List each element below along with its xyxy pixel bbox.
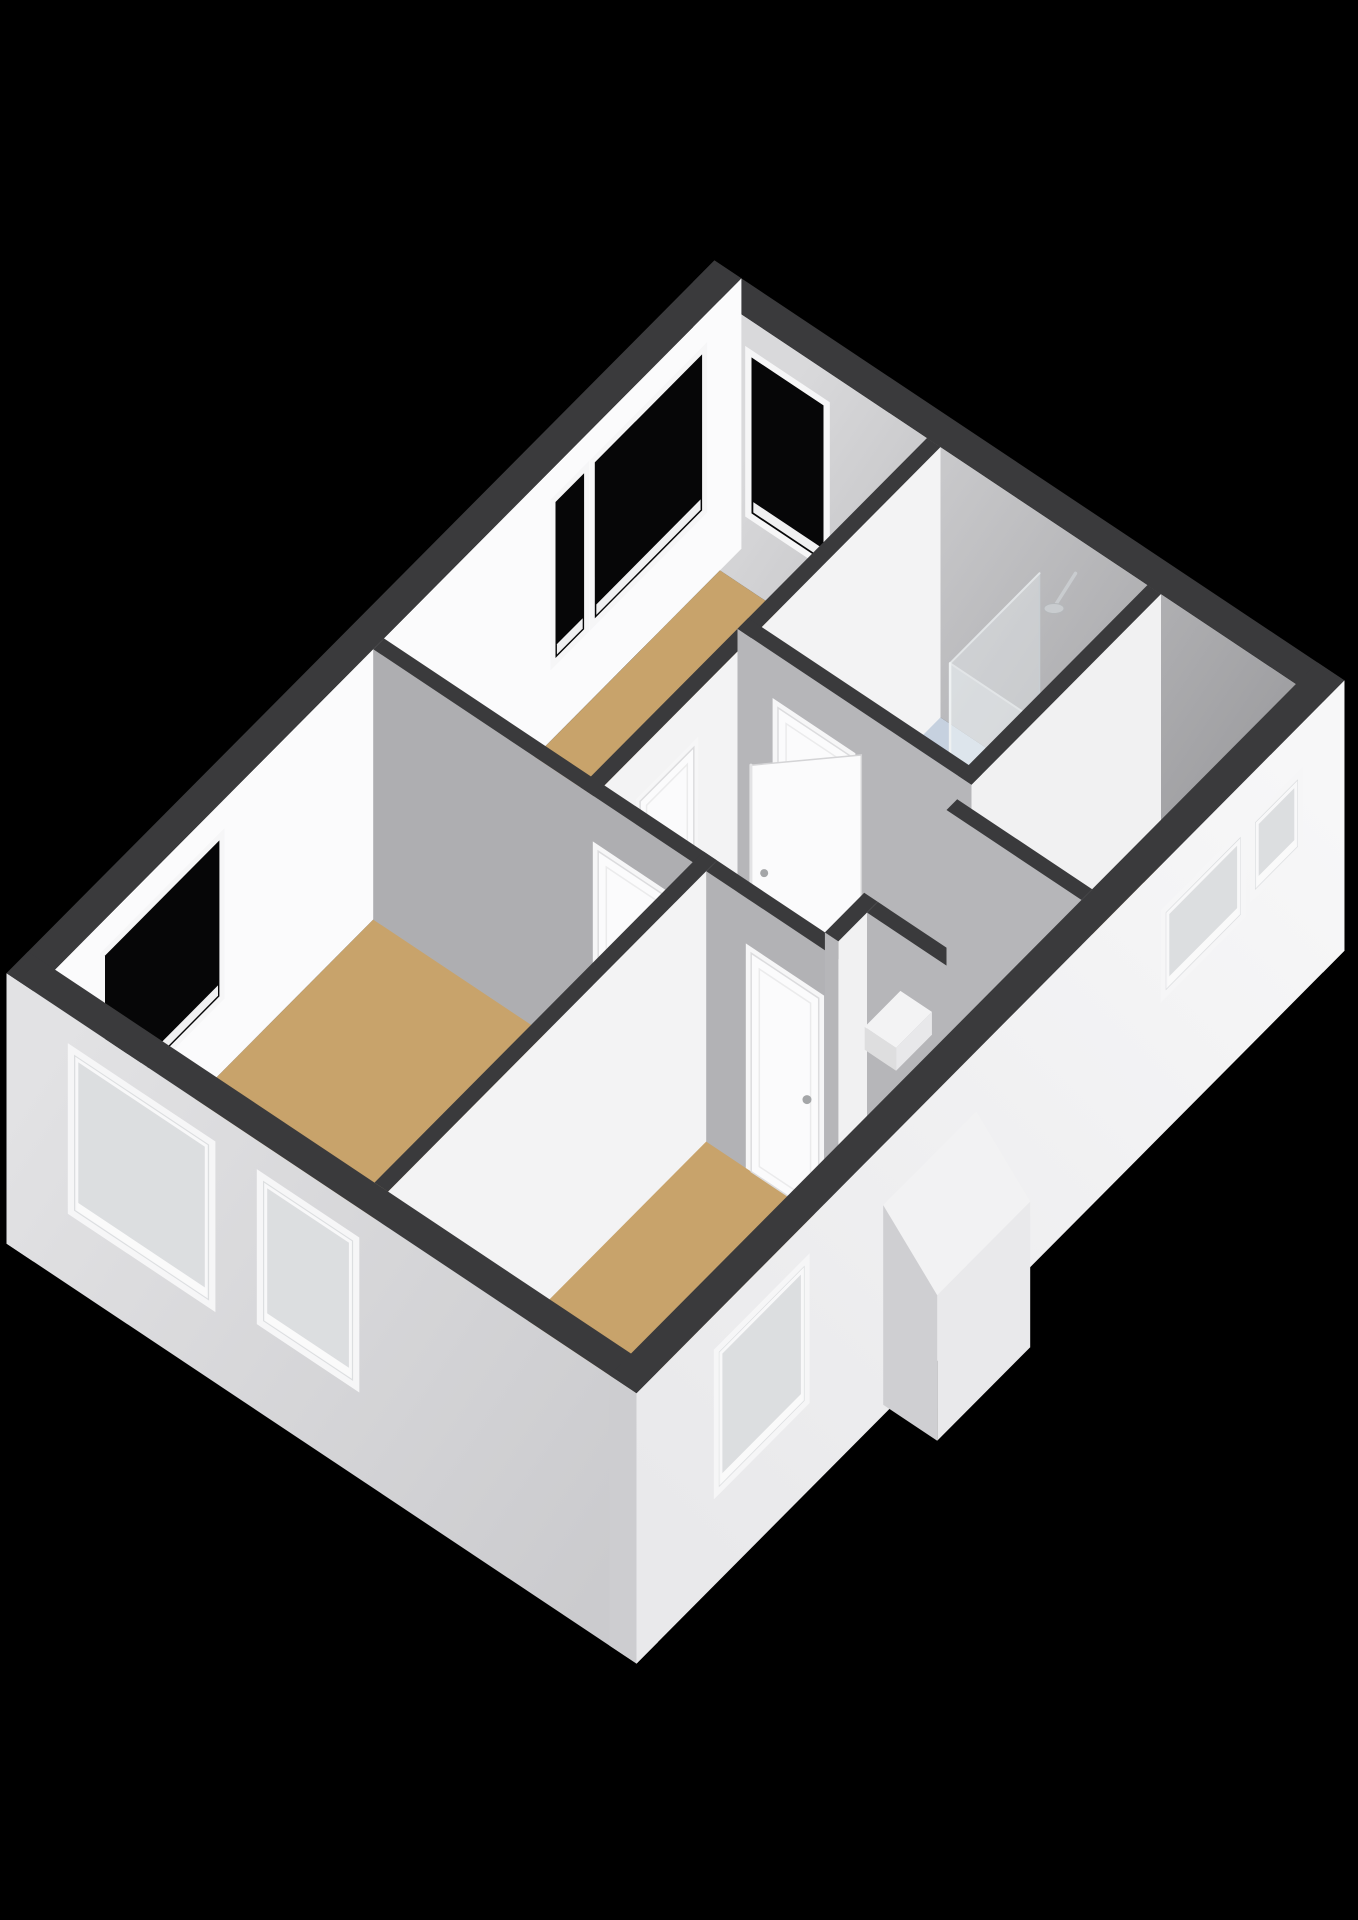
floorplan-canvas (0, 0, 1358, 1920)
floorplan-3d-render (0, 0, 1358, 1920)
